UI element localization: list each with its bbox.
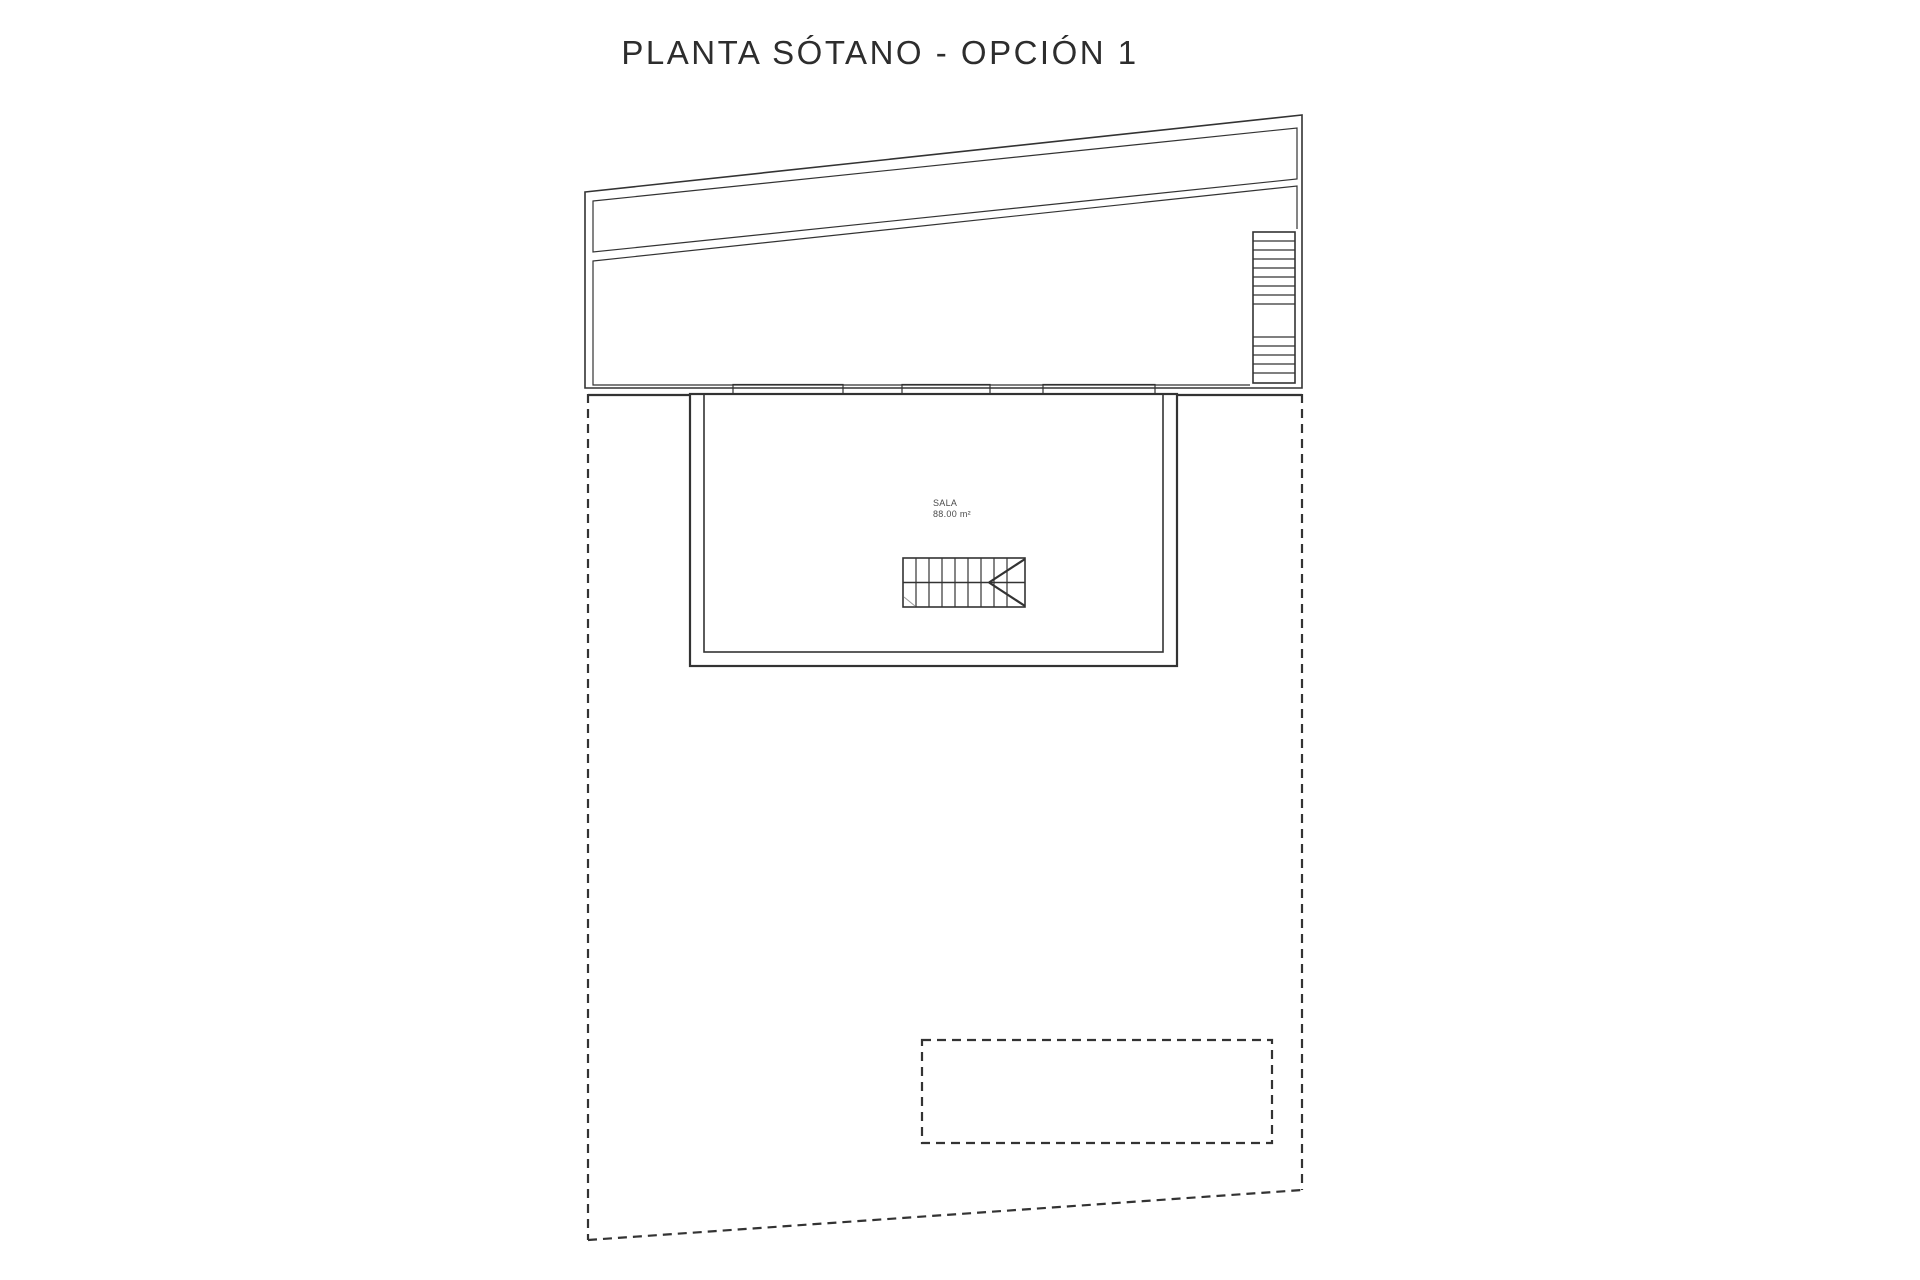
- room-name-label: SALA: [933, 498, 957, 508]
- sala-wall-inner: [704, 394, 1163, 652]
- floor-plan-page: PLANTA SÓTANO - OPCIÓN 1: [0, 0, 1920, 1280]
- plot-boundary: [588, 394, 1302, 1240]
- window-bar: [1043, 385, 1155, 395]
- terrain-band: [593, 128, 1297, 252]
- sala-room: SALA 88.00 m²: [690, 394, 1177, 666]
- projection-dashed-rectangle: [922, 1040, 1272, 1143]
- window-bar: [902, 385, 990, 395]
- floor-plan-drawing: SALA 88.00 m²: [0, 0, 1920, 1280]
- interior-stair: [903, 558, 1025, 607]
- exterior-stair: [1250, 229, 1298, 386]
- terrain-section: [585, 115, 1302, 388]
- window-bar: [733, 385, 843, 395]
- sala-wall-outer: [690, 394, 1177, 666]
- plot-boundary-bottom-dashed: [588, 1190, 1302, 1240]
- room-area-label: 88.00 m²: [933, 509, 971, 519]
- basement-windows: [733, 385, 1155, 395]
- terrain-outer-boundary: [585, 115, 1302, 388]
